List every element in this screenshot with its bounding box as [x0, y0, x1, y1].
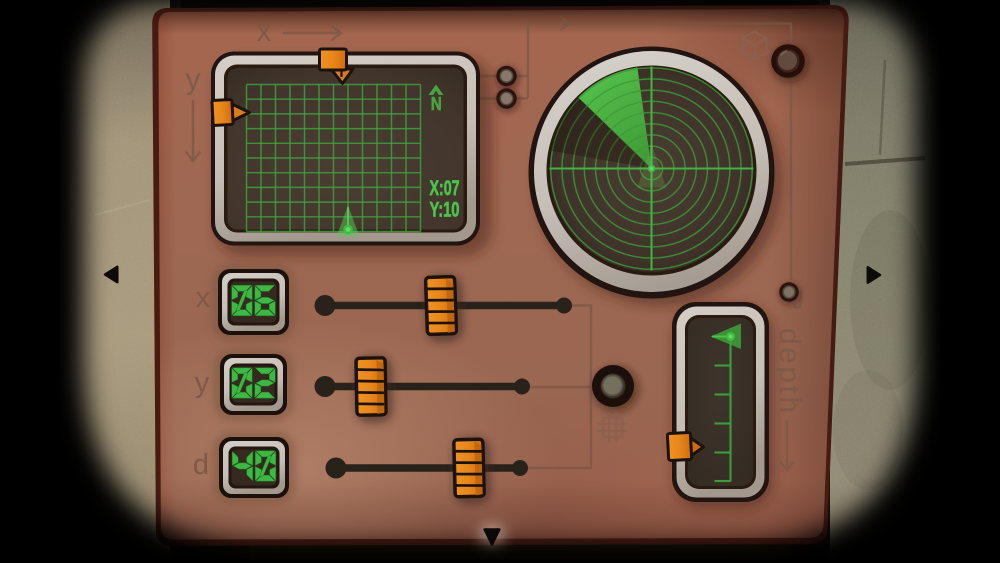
- svg-text:x: x: [196, 282, 211, 314]
- svg-text:y: y: [195, 367, 210, 399]
- svg-text:y: y: [186, 63, 201, 96]
- svg-text:X:07: X:07: [430, 176, 460, 200]
- svg-text:N: N: [431, 94, 442, 114]
- svg-text:Y:10: Y:10: [430, 198, 460, 222]
- svg-text:d: d: [193, 449, 209, 481]
- svg-text:depth: depth: [773, 328, 806, 416]
- svg-text:x: x: [257, 15, 272, 48]
